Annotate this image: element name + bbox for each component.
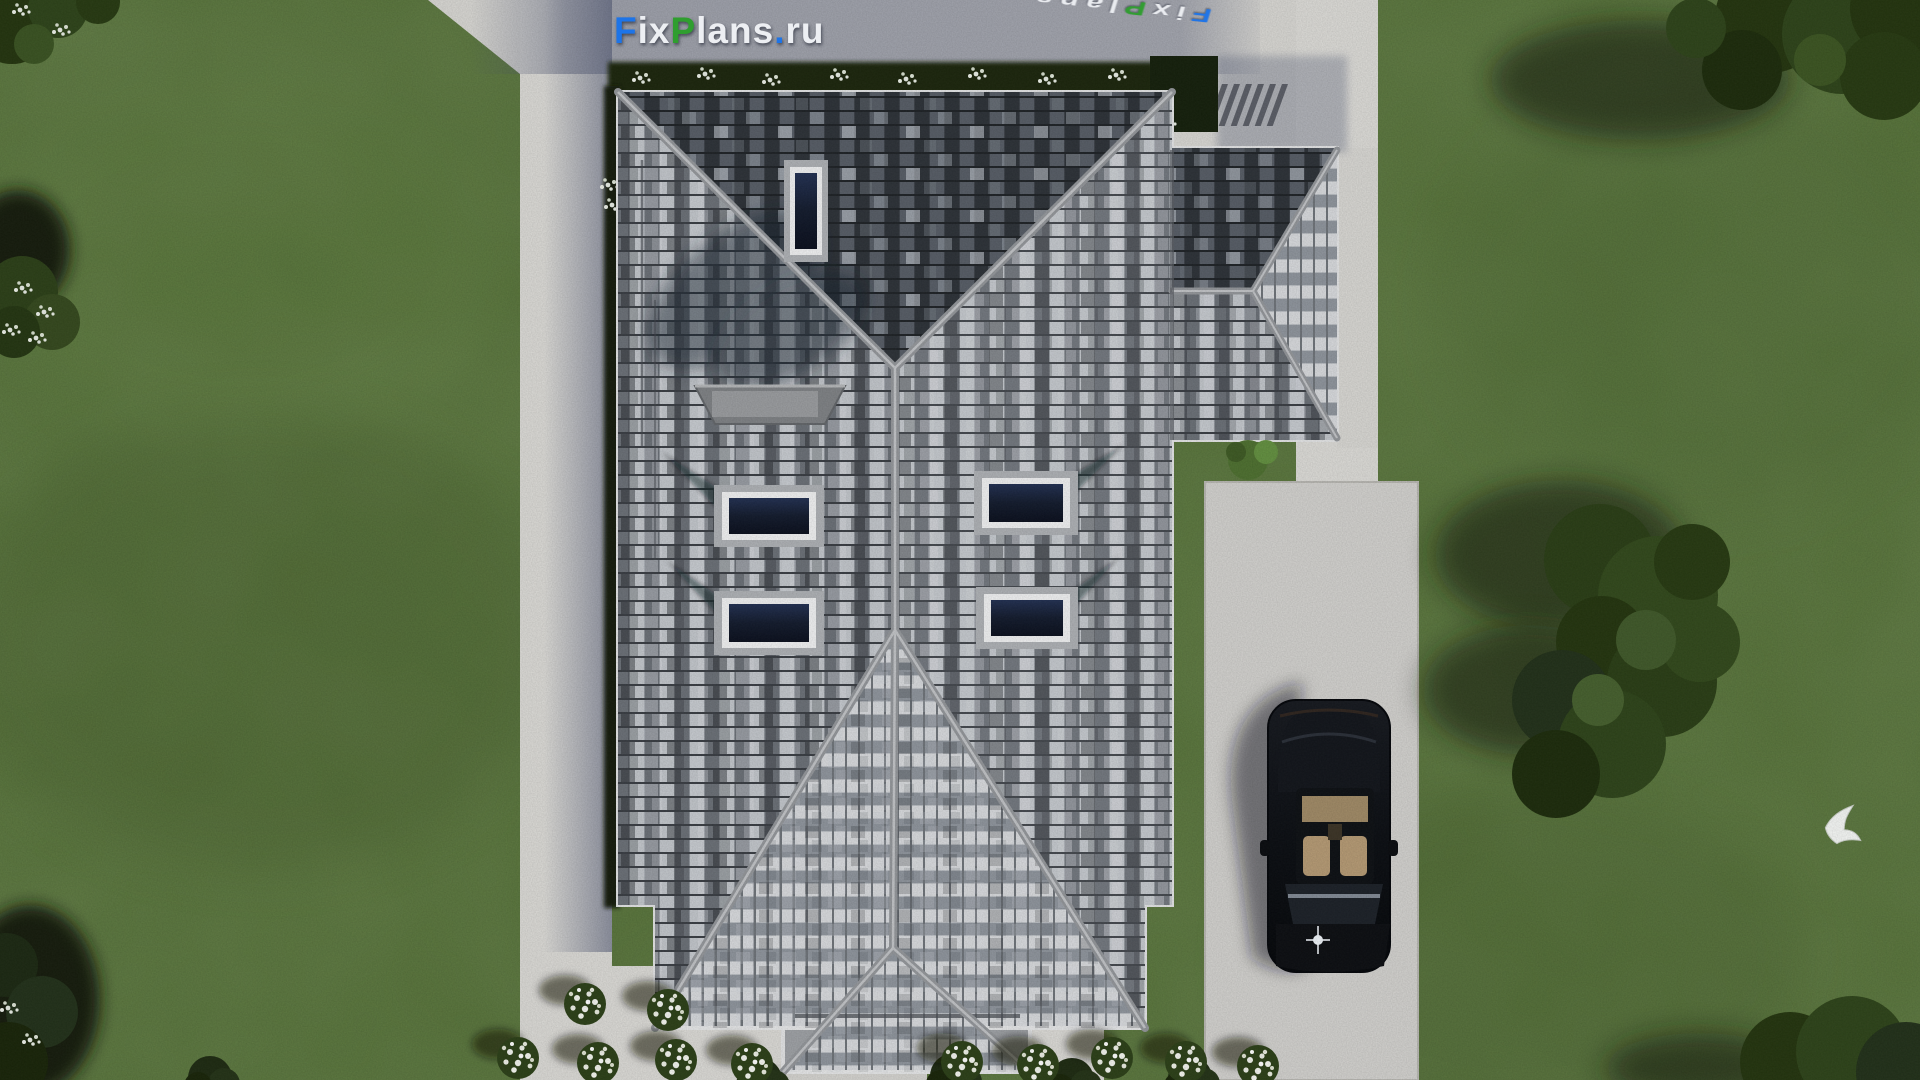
watermark-letter-segment: ru [785,10,824,51]
watermark-letter-segment: . [774,10,785,51]
watermark-letter-segment: lans [696,10,774,51]
film-grain-light [0,0,1920,1080]
watermark-letter-segment: ix [638,10,671,51]
fixplans-watermark: FixPlans.ru [614,10,824,52]
scene-canvas [0,0,1920,1080]
watermark-letter-segment: F [614,10,638,51]
aerial-render-scene: FixPlans.ru FixPlans.ru [0,0,1920,1080]
watermark-letter-segment: ix [1142,0,1188,24]
watermark-letter-segment: P [670,10,696,51]
